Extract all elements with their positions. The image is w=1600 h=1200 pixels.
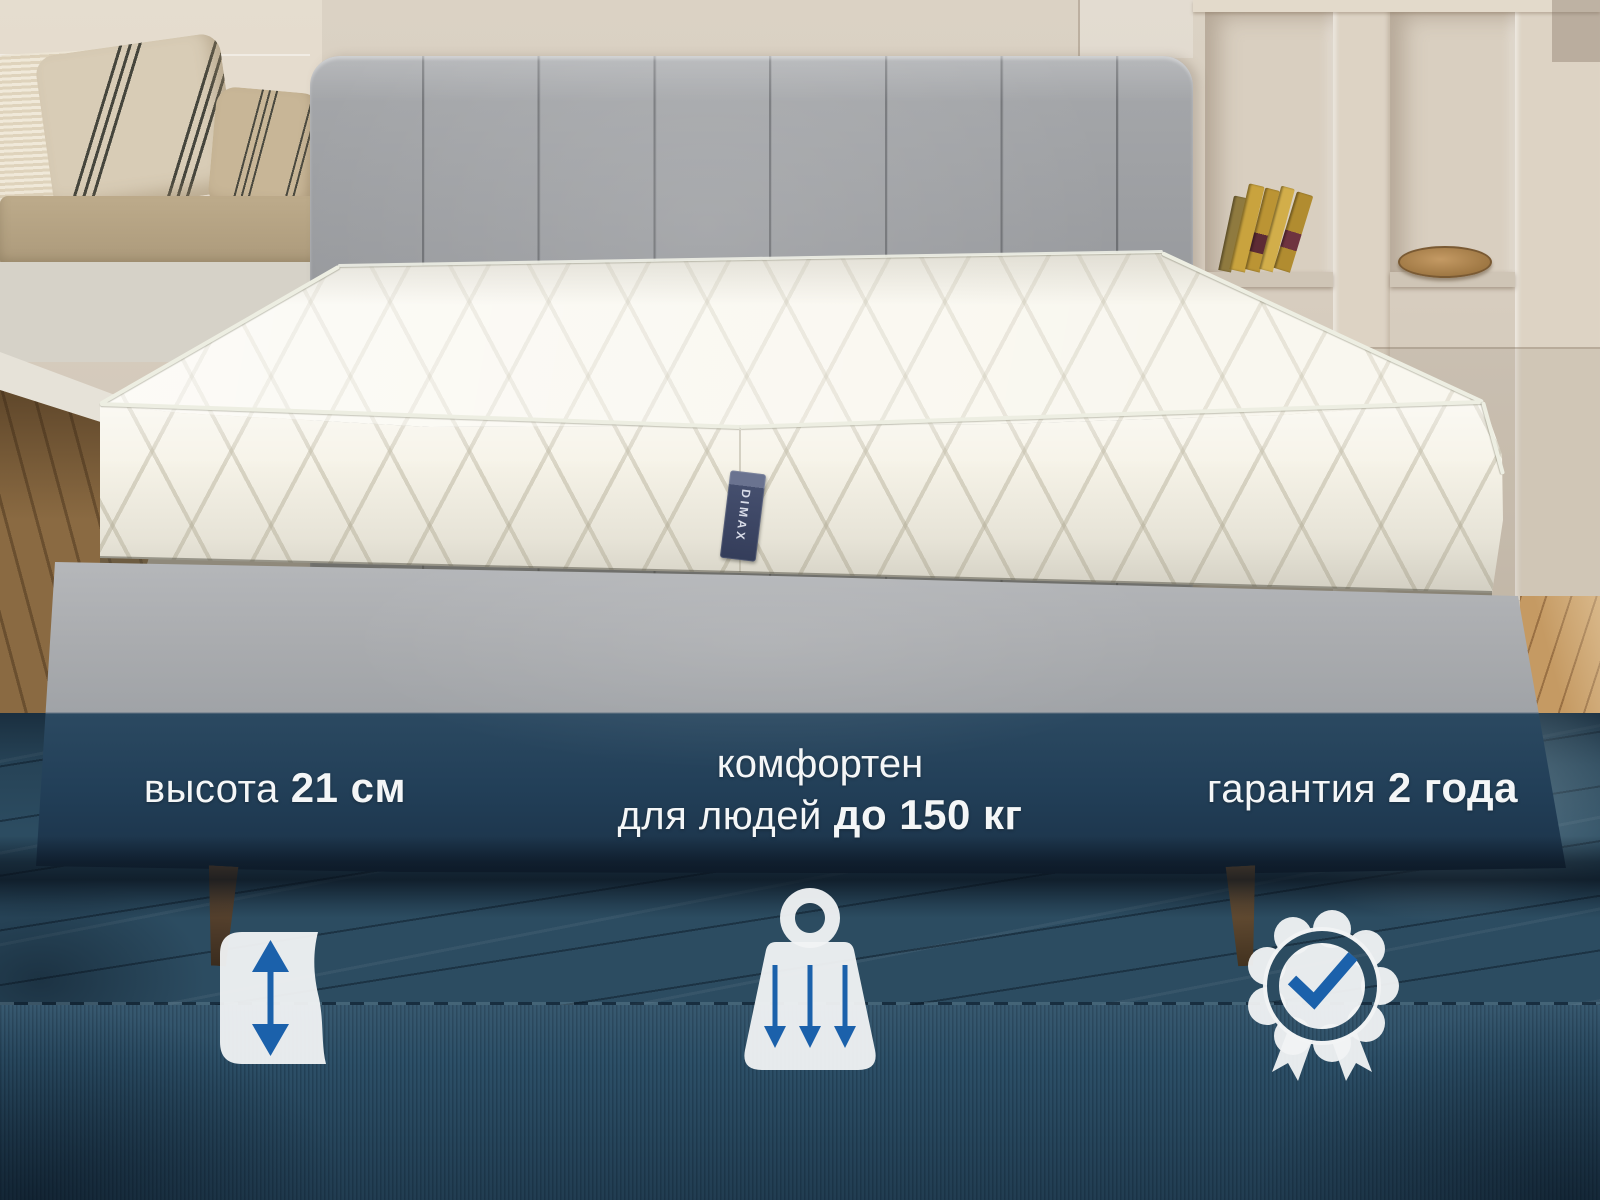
wall-beam bbox=[1193, 0, 1600, 12]
wall-niche-right bbox=[1390, 6, 1515, 286]
feature-height: высота 21 см bbox=[110, 764, 440, 812]
bench-cushion bbox=[0, 196, 320, 268]
height-icon bbox=[216, 930, 340, 1066]
feature-warranty: гарантия 2 года bbox=[1190, 764, 1535, 812]
wood-slice-decor bbox=[1398, 246, 1492, 278]
feature-warranty-value: 2 года bbox=[1388, 764, 1518, 812]
product-banner: DIMAX высота 21 см комфортен для людей д… bbox=[0, 0, 1600, 1200]
weight-icon bbox=[742, 884, 878, 1072]
warranty-badge-icon bbox=[1242, 902, 1402, 1082]
books-on-shelf bbox=[1224, 180, 1328, 272]
feature-comfort-label: для людей bbox=[617, 794, 821, 839]
feature-warranty-label: гарантия bbox=[1207, 767, 1376, 812]
feature-comfort-value: до 150 кг bbox=[834, 791, 1023, 839]
wall-corner-notch bbox=[1552, 0, 1600, 62]
feature-height-value: 21 см bbox=[291, 764, 406, 812]
brand-tag-label: DIMAX bbox=[733, 489, 753, 544]
feature-comfort-line1: комфортен bbox=[600, 742, 1040, 787]
wall-light-zone bbox=[1080, 0, 1193, 58]
feature-comfort: комфортен для людей до 150 кг bbox=[600, 742, 1040, 839]
feature-height-label: высота bbox=[144, 767, 279, 812]
